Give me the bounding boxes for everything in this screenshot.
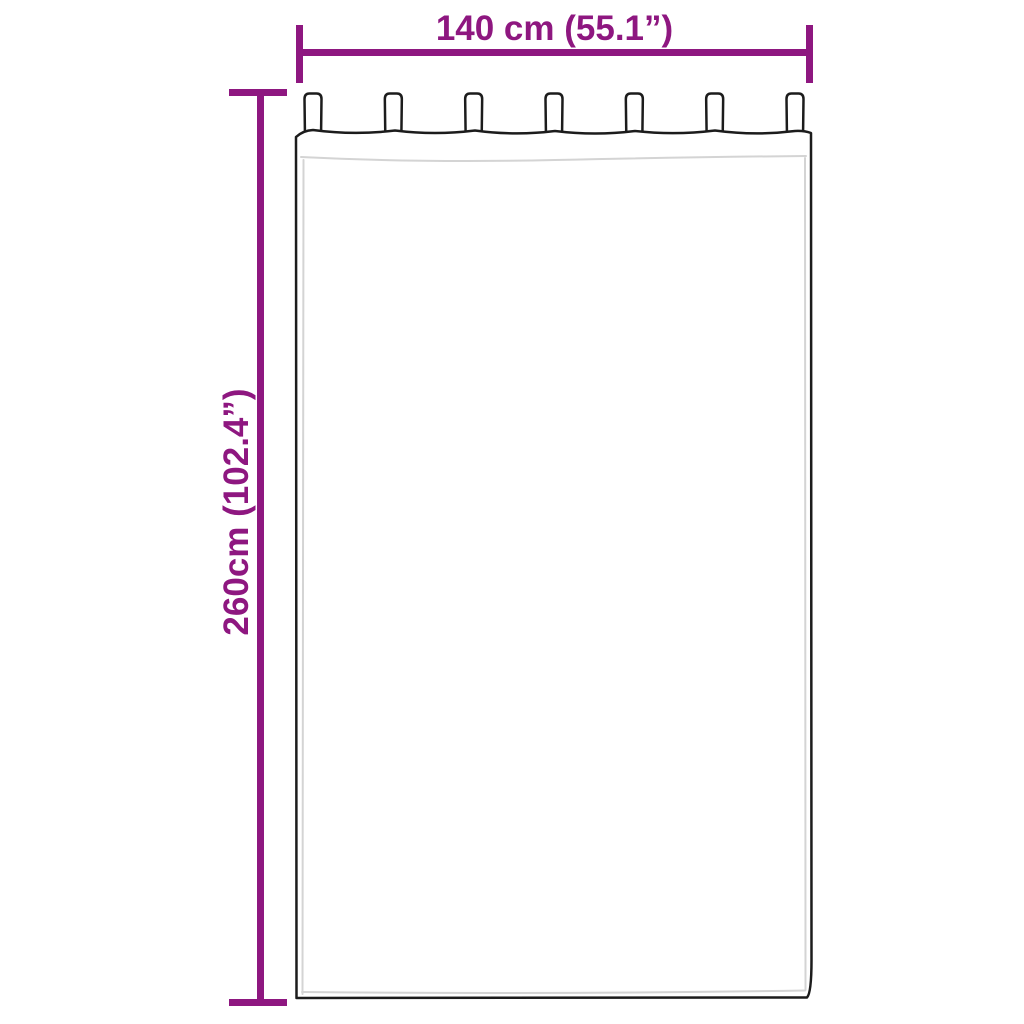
width-dimension-label: 140 cm (55.1”): [296, 0, 813, 46]
height-dimension-line: [257, 92, 264, 1003]
product-dimension-diagram: 140 cm (55.1”) 260cm (102.4”): [0, 0, 1024, 1024]
curtain-left-seam-line: [303, 160, 304, 994]
curtain-drawing: [0, 0, 1024, 1024]
width-dimension-cap-left: [296, 25, 303, 83]
height-dimension-cap-top: [229, 89, 287, 96]
width-dimension-line: [296, 49, 813, 56]
height-dimension-cap-bottom: [229, 999, 287, 1006]
height-dimension-label: 260cm (102.4”): [210, 282, 254, 742]
curtain-right-seam-line: [805, 158, 806, 990]
curtain-panel: [296, 130, 812, 998]
width-dimension-cap-right: [806, 25, 813, 83]
